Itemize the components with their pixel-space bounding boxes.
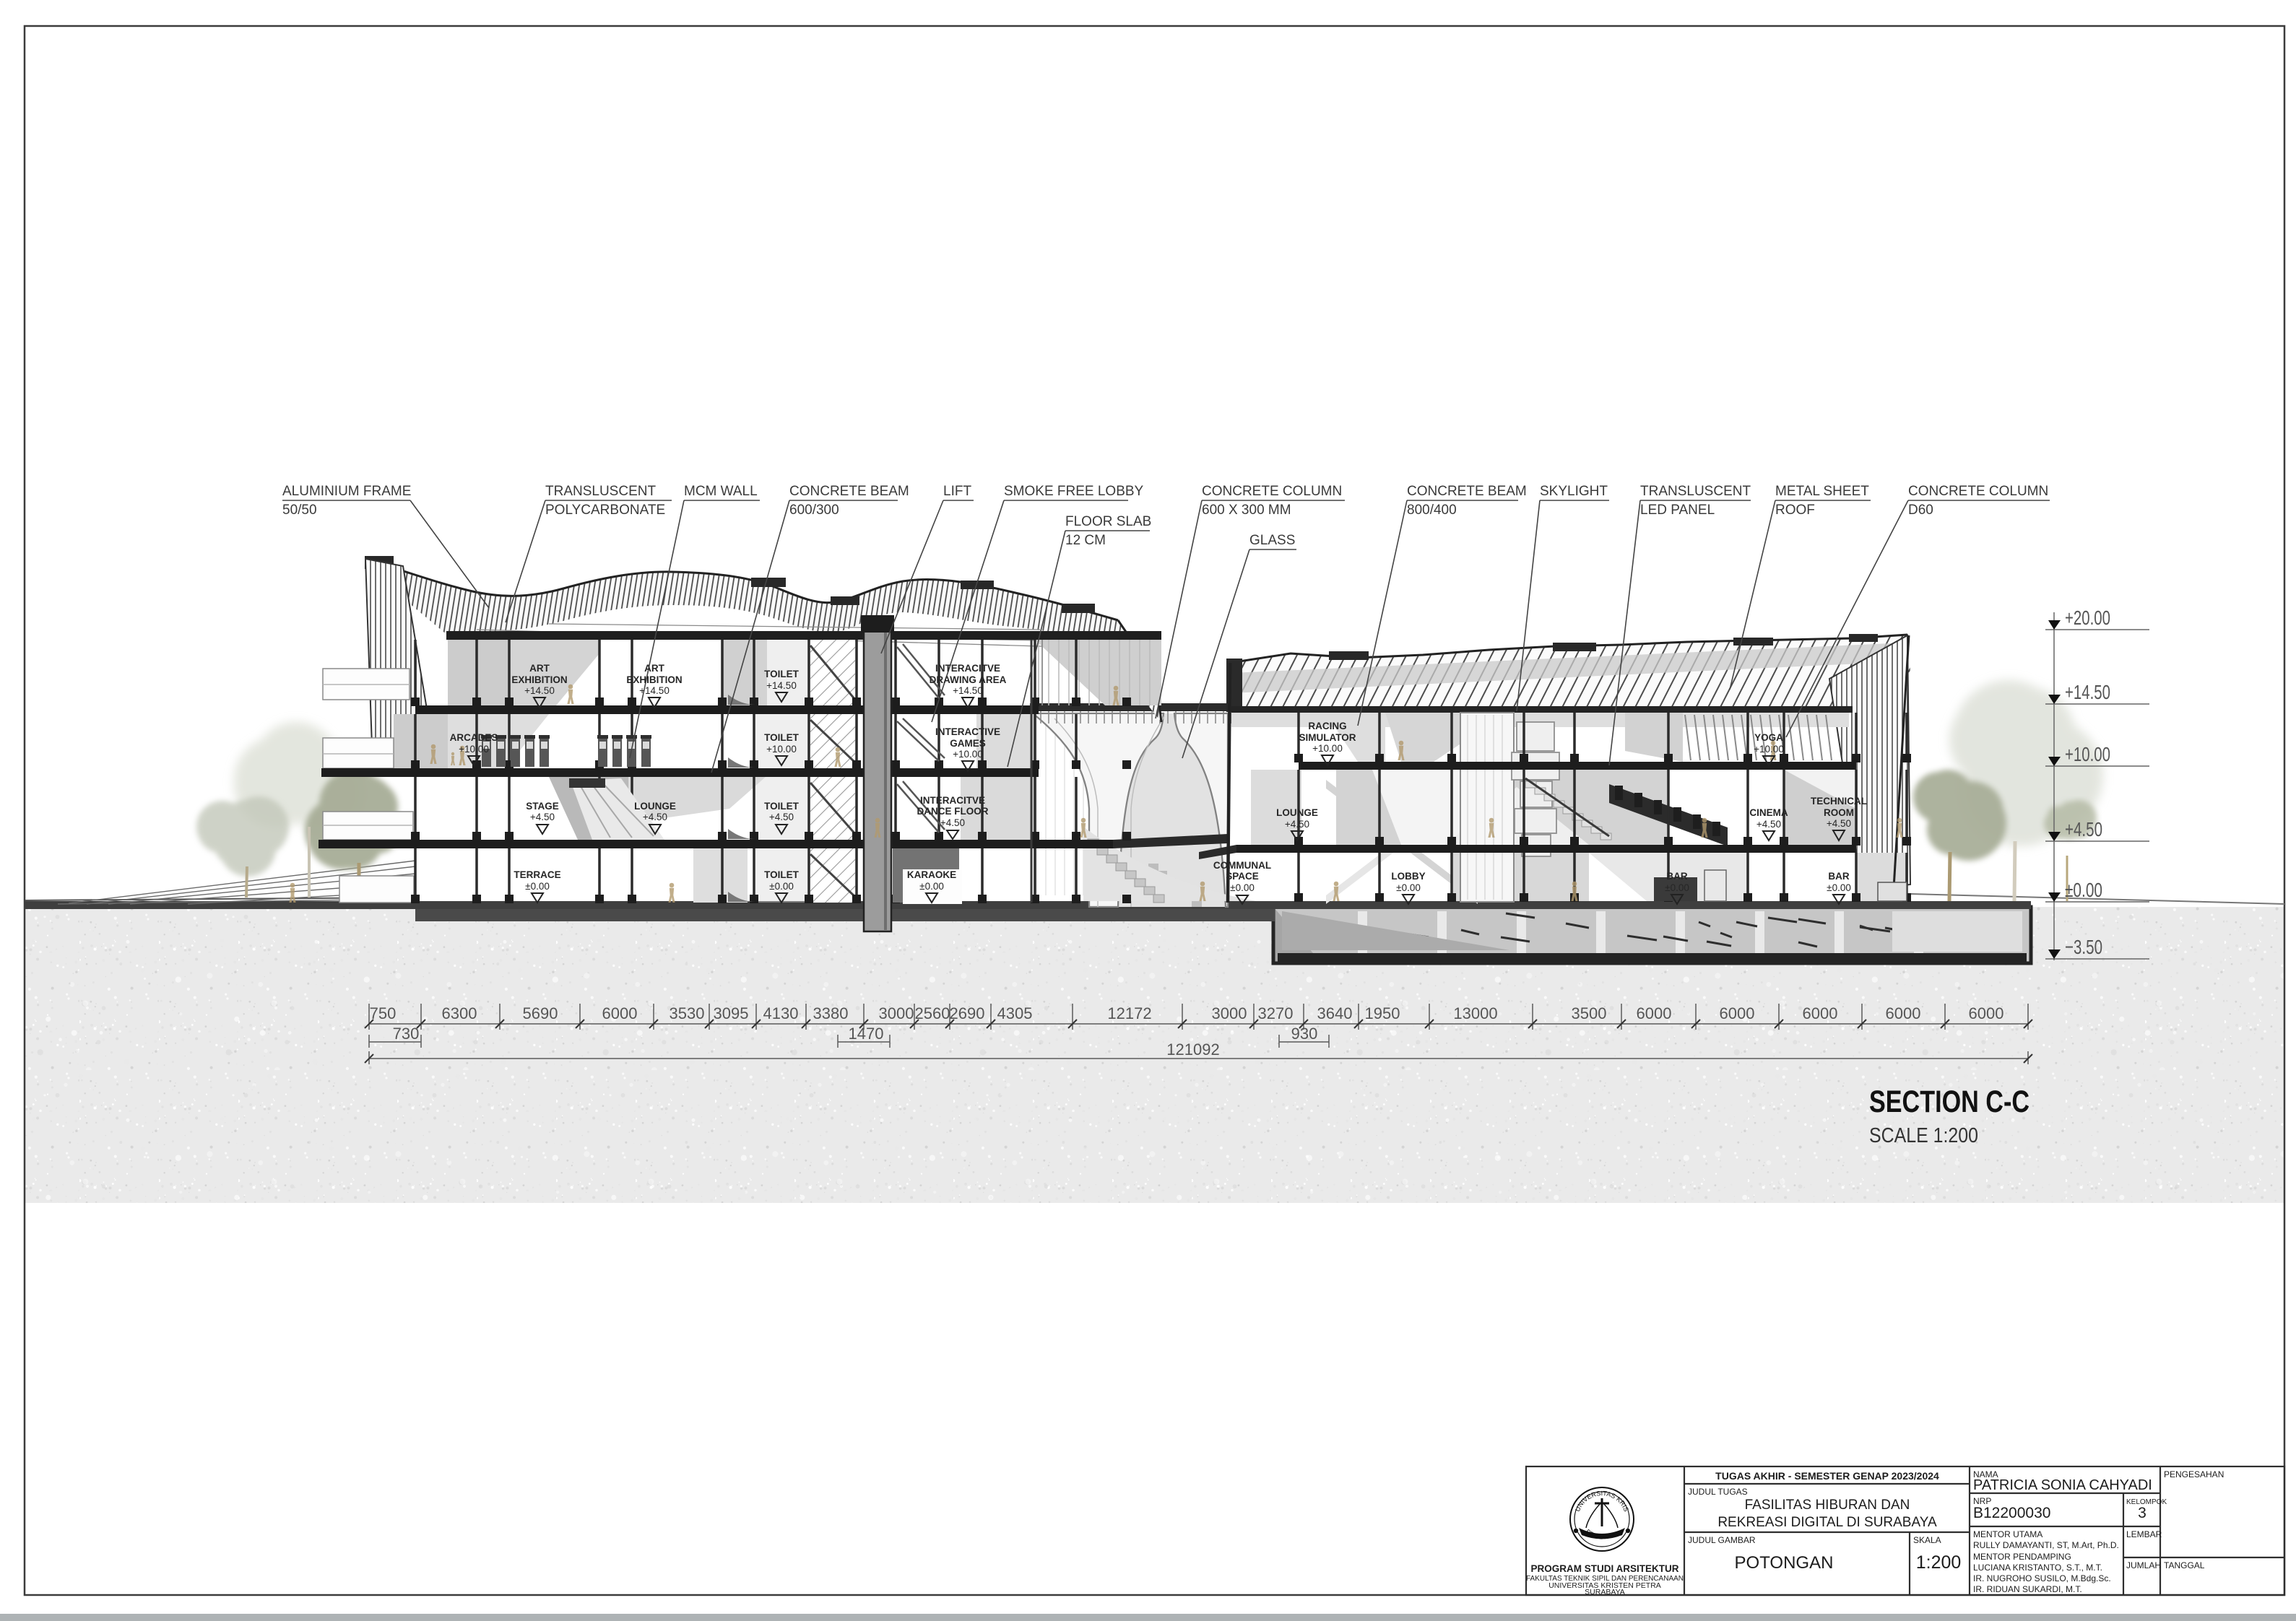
svg-text:IR. NUGROHO SUSILO, M.Bdg.Sc.: IR. NUGROHO SUSILO, M.Bdg.Sc. bbox=[1973, 1573, 2111, 1583]
svg-text:KELOMPOK: KELOMPOK bbox=[2126, 1498, 2167, 1506]
svg-text:+10.00: +10.00 bbox=[1312, 743, 1343, 754]
svg-text:6000: 6000 bbox=[602, 1004, 638, 1022]
svg-text:CONCRETE BEAM: CONCRETE BEAM bbox=[789, 484, 909, 499]
svg-text:3095: 3095 bbox=[714, 1004, 749, 1022]
svg-text:PENGESAHAN: PENGESAHAN bbox=[2164, 1469, 2224, 1479]
svg-text:SKYLIGHT: SKYLIGHT bbox=[1540, 484, 1608, 499]
svg-text:ART: ART bbox=[644, 663, 664, 674]
svg-text:+4.50: +4.50 bbox=[530, 812, 555, 822]
svg-text:ART: ART bbox=[529, 663, 550, 674]
svg-text:PATRICIA SONIA CAHYADI: PATRICIA SONIA CAHYADI bbox=[1973, 1477, 2152, 1493]
svg-text:+4.50: +4.50 bbox=[1756, 819, 1781, 830]
svg-text:121092: 121092 bbox=[1166, 1040, 1219, 1059]
svg-text:DANCE FLOOR: DANCE FLOOR bbox=[917, 806, 989, 817]
svg-text:±0.00: ±0.00 bbox=[1230, 882, 1255, 893]
svg-text:±0.00: ±0.00 bbox=[525, 881, 550, 892]
svg-text:REKREASI DIGITAL DI SURABAYA: REKREASI DIGITAL DI SURABAYA bbox=[1717, 1515, 1937, 1530]
svg-text:SMOKE FREE LOBBY: SMOKE FREE LOBBY bbox=[1004, 484, 1144, 499]
svg-text:12 CM: 12 CM bbox=[1065, 533, 1106, 548]
svg-text:±0.00: ±0.00 bbox=[1665, 882, 1689, 893]
svg-text:LOUNGE: LOUNGE bbox=[1276, 807, 1318, 818]
svg-text:5690: 5690 bbox=[523, 1004, 558, 1022]
svg-text:POTONGAN: POTONGAN bbox=[1735, 1553, 1834, 1573]
svg-text:BAR: BAR bbox=[1666, 871, 1687, 882]
svg-text:±0.00: ±0.00 bbox=[1827, 882, 1851, 893]
svg-text:CONCRETE COLUMN: CONCRETE COLUMN bbox=[1908, 484, 2048, 499]
svg-text:TOILET: TOILET bbox=[764, 869, 800, 880]
svg-text:+10.00: +10.00 bbox=[766, 744, 797, 755]
svg-text:DRAWING AREA: DRAWING AREA bbox=[930, 674, 1007, 685]
svg-text:COMMUNAL: COMMUNAL bbox=[1213, 860, 1271, 871]
svg-text:LOBBY: LOBBY bbox=[1391, 871, 1425, 882]
svg-text:±0.00: ±0.00 bbox=[2065, 879, 2102, 901]
svg-text:+20.00: +20.00 bbox=[2065, 607, 2110, 629]
svg-text:±0.00: ±0.00 bbox=[769, 881, 794, 892]
svg-text:±0.00: ±0.00 bbox=[1396, 882, 1421, 893]
svg-text:LEMBAR: LEMBAR bbox=[2126, 1529, 2162, 1539]
svg-text:INTERACITVE: INTERACITVE bbox=[935, 663, 1000, 674]
svg-text:1:200: 1:200 bbox=[1916, 1552, 1962, 1573]
svg-text:+14.50: +14.50 bbox=[524, 685, 555, 696]
svg-text:CONCRETE BEAM: CONCRETE BEAM bbox=[1407, 484, 1527, 499]
svg-text:6000: 6000 bbox=[1886, 1004, 1921, 1022]
svg-text:+4.50: +4.50 bbox=[769, 812, 794, 822]
svg-text:D60: D60 bbox=[1908, 503, 1933, 518]
svg-text:LED PANEL: LED PANEL bbox=[1640, 503, 1715, 518]
svg-text:MCM WALL: MCM WALL bbox=[684, 484, 758, 499]
svg-text:PROGRAM STUDI ARSITEKTUR: PROGRAM STUDI ARSITEKTUR bbox=[1531, 1563, 1679, 1574]
svg-text:CINEMA: CINEMA bbox=[1749, 807, 1788, 818]
svg-text:TERRACE: TERRACE bbox=[514, 869, 560, 880]
svg-text:730: 730 bbox=[393, 1025, 420, 1043]
svg-text:2690: 2690 bbox=[950, 1004, 985, 1022]
svg-text:TANGGAL: TANGGAL bbox=[2164, 1560, 2205, 1570]
svg-text:CONCRETE COLUMN: CONCRETE COLUMN bbox=[1202, 484, 1342, 499]
svg-text:6000: 6000 bbox=[1637, 1004, 1672, 1022]
svg-text:MENTOR PENDAMPING: MENTOR PENDAMPING bbox=[1973, 1552, 2071, 1562]
svg-text:+14.50: +14.50 bbox=[639, 685, 670, 696]
svg-text:ARCADES: ARCADES bbox=[450, 732, 498, 743]
svg-text:ROOF: ROOF bbox=[1775, 503, 1815, 518]
svg-text:3380: 3380 bbox=[813, 1004, 849, 1022]
svg-text:6000: 6000 bbox=[1803, 1004, 1838, 1022]
svg-text:TRANSLUSCENT: TRANSLUSCENT bbox=[1640, 484, 1751, 499]
svg-text:4305: 4305 bbox=[997, 1004, 1033, 1022]
svg-text:3000: 3000 bbox=[1212, 1004, 1247, 1022]
svg-text:±0.00: ±0.00 bbox=[919, 881, 944, 892]
svg-text:TUGAS AKHIR - SEMESTER GENAP 2: TUGAS AKHIR - SEMESTER GENAP 2023/2024 bbox=[1715, 1470, 1939, 1482]
svg-text:LIFT: LIFT bbox=[943, 484, 971, 499]
svg-text:TOILET: TOILET bbox=[764, 801, 800, 812]
svg-text:+4.50: +4.50 bbox=[2065, 818, 2102, 840]
svg-text:POLYCARBONATE: POLYCARBONATE bbox=[545, 503, 665, 518]
svg-text:YOGA: YOGA bbox=[1754, 732, 1783, 743]
svg-text:BAR: BAR bbox=[1828, 871, 1849, 882]
svg-text:SURABAYA: SURABAYA bbox=[1585, 1588, 1625, 1596]
svg-text:6000: 6000 bbox=[1720, 1004, 1755, 1022]
svg-text:GLASS: GLASS bbox=[1249, 533, 1295, 548]
svg-text:750: 750 bbox=[370, 1004, 397, 1022]
svg-text:+4.50: +4.50 bbox=[940, 817, 965, 828]
svg-text:EXHIBITION: EXHIBITION bbox=[626, 674, 682, 685]
svg-text:+10.00: +10.00 bbox=[459, 744, 489, 755]
svg-text:TOILET: TOILET bbox=[764, 669, 800, 679]
svg-text:JUDUL TUGAS: JUDUL TUGAS bbox=[1688, 1487, 1748, 1497]
svg-text:3270: 3270 bbox=[1258, 1004, 1294, 1022]
svg-text:1950: 1950 bbox=[1365, 1004, 1400, 1022]
svg-text:6300: 6300 bbox=[442, 1004, 477, 1022]
svg-text:+10.00: +10.00 bbox=[2065, 743, 2110, 765]
svg-text:600 X 300 MM: 600 X 300 MM bbox=[1202, 503, 1291, 518]
svg-text:ALUMINIUM FRAME: ALUMINIUM FRAME bbox=[282, 484, 411, 499]
svg-text:ROOM: ROOM bbox=[1824, 807, 1854, 818]
svg-text:RULLY DAMAYANTI, ST, M.Art, Ph: RULLY DAMAYANTI, ST, M.Art, Ph.D. bbox=[1973, 1540, 2119, 1550]
svg-text:SKALA: SKALA bbox=[1913, 1535, 1941, 1545]
svg-text:800/400: 800/400 bbox=[1407, 503, 1457, 518]
svg-text:930: 930 bbox=[1291, 1025, 1318, 1043]
svg-text:13000: 13000 bbox=[1453, 1004, 1497, 1022]
svg-text:12172: 12172 bbox=[1107, 1004, 1151, 1022]
svg-text:1470: 1470 bbox=[849, 1025, 884, 1043]
svg-text:TRANSLUSCENT: TRANSLUSCENT bbox=[545, 484, 656, 499]
svg-text:FASILITAS HIBURAN DAN: FASILITAS HIBURAN DAN bbox=[1745, 1498, 1910, 1513]
svg-text:+14.50: +14.50 bbox=[766, 680, 797, 691]
svg-text:2560: 2560 bbox=[915, 1004, 950, 1022]
svg-text:TECHNICAL: TECHNICAL bbox=[1811, 796, 1867, 807]
svg-text:3530: 3530 bbox=[670, 1004, 705, 1022]
svg-text:−3.50: −3.50 bbox=[2065, 936, 2102, 958]
svg-text:LOUNGE: LOUNGE bbox=[634, 801, 676, 812]
svg-text:INTERACTIVE: INTERACTIVE bbox=[935, 726, 1000, 737]
svg-text:SCALE 1:200: SCALE 1:200 bbox=[1869, 1124, 1978, 1147]
svg-text:6000: 6000 bbox=[1969, 1004, 2004, 1022]
svg-text:50/50: 50/50 bbox=[282, 503, 317, 518]
svg-text:RACING: RACING bbox=[1308, 721, 1346, 731]
svg-text:B12200030: B12200030 bbox=[1973, 1505, 2050, 1521]
svg-text:600/300: 600/300 bbox=[789, 503, 839, 518]
svg-text:+10.00: +10.00 bbox=[953, 749, 983, 760]
svg-text:JUMLAH: JUMLAH bbox=[2126, 1560, 2161, 1570]
svg-text:4130: 4130 bbox=[763, 1004, 799, 1022]
svg-text:GAMES: GAMES bbox=[950, 738, 986, 749]
svg-text:+4.50: +4.50 bbox=[643, 812, 667, 822]
svg-text:3000: 3000 bbox=[879, 1004, 914, 1022]
svg-text:3: 3 bbox=[2138, 1505, 2146, 1521]
svg-text:+4.50: +4.50 bbox=[1285, 819, 1309, 830]
svg-text:+10.00: +10.00 bbox=[1754, 744, 1784, 755]
svg-text:IR. RIDUAN SUKARDI, M.T.: IR. RIDUAN SUKARDI, M.T. bbox=[1973, 1584, 2082, 1594]
svg-text:+14.50: +14.50 bbox=[2065, 681, 2110, 703]
svg-text:MENTOR UTAMA: MENTOR UTAMA bbox=[1973, 1529, 2042, 1539]
svg-text:INTERACITVE: INTERACITVE bbox=[920, 795, 985, 806]
svg-text:3500: 3500 bbox=[1572, 1004, 1607, 1022]
svg-text:+4.50: +4.50 bbox=[1827, 818, 1851, 829]
svg-text:SECTION C-C: SECTION C-C bbox=[1869, 1085, 2029, 1119]
svg-text:3640: 3640 bbox=[1317, 1004, 1353, 1022]
svg-text:JUDUL GAMBAR: JUDUL GAMBAR bbox=[1688, 1535, 1756, 1545]
svg-text:METAL SHEET: METAL SHEET bbox=[1775, 484, 1869, 499]
svg-text:LUCIANA KRISTANTO, S.T., M.T.: LUCIANA KRISTANTO, S.T., M.T. bbox=[1973, 1563, 2102, 1573]
svg-text:+14.50: +14.50 bbox=[953, 685, 983, 696]
svg-text:SPACE: SPACE bbox=[1226, 871, 1259, 882]
svg-text:SIMULATOR: SIMULATOR bbox=[1299, 732, 1356, 743]
svg-text:TOILET: TOILET bbox=[764, 732, 800, 743]
svg-text:STAGE: STAGE bbox=[526, 801, 559, 812]
svg-text:FLOOR SLAB: FLOOR SLAB bbox=[1065, 514, 1151, 529]
svg-text:KARAOKE: KARAOKE bbox=[907, 869, 956, 880]
svg-text:EXHIBITION: EXHIBITION bbox=[511, 674, 567, 685]
